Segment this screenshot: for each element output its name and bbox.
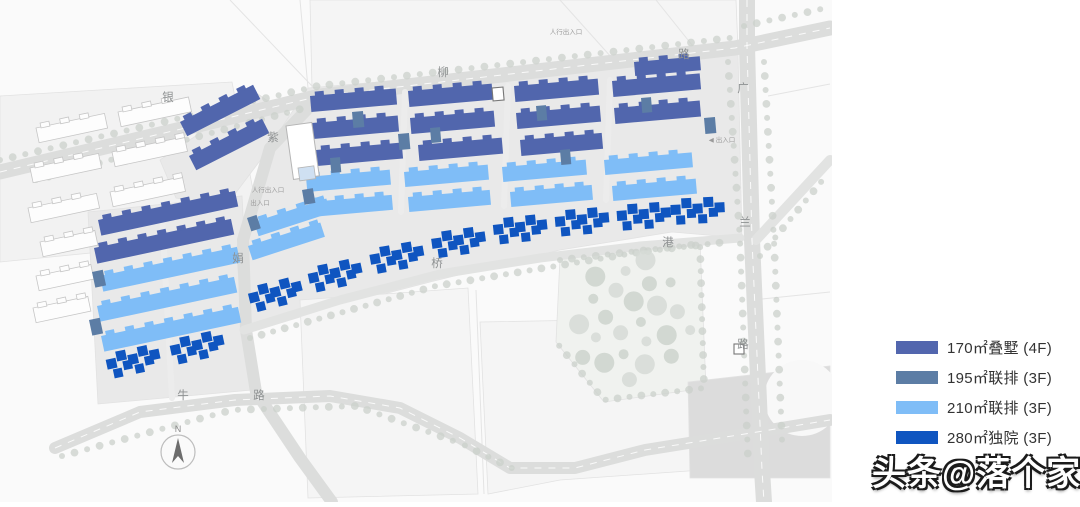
rect [354, 193, 363, 199]
tree-icon [664, 349, 679, 364]
tree-icon [773, 297, 779, 303]
rect [463, 227, 474, 238]
tree-icon [494, 62, 500, 68]
rect [525, 214, 536, 225]
rect [352, 111, 364, 128]
tree-icon [700, 375, 708, 383]
tree-icon [638, 392, 646, 400]
rect [587, 207, 598, 218]
rect [554, 183, 563, 189]
rect [507, 162, 516, 168]
tree-icon [622, 372, 637, 387]
rect [639, 57, 648, 63]
rect [380, 140, 389, 146]
rect [335, 195, 344, 201]
tree-icon [738, 269, 744, 275]
tree-icon [713, 36, 721, 44]
internal-lane [504, 86, 508, 206]
tree-icon [496, 459, 504, 467]
tree-icon [676, 243, 682, 249]
tree-icon [743, 422, 751, 430]
road-label: 牛 [177, 388, 189, 402]
legend-label: 210㎡联排 (3F) [947, 397, 1052, 418]
tree-icon [804, 8, 812, 16]
rect [545, 133, 554, 139]
tree-icon [281, 324, 289, 332]
tree-icon [739, 310, 747, 318]
rect [317, 118, 326, 124]
tree-icon [685, 386, 693, 394]
tree-icon [450, 438, 456, 444]
tree-icon [614, 395, 622, 403]
rect [546, 158, 555, 164]
tree-icon [467, 276, 475, 284]
rect [633, 214, 643, 224]
tree-icon [261, 406, 267, 412]
tree-icon [587, 380, 593, 386]
rect [330, 157, 341, 173]
rect [360, 141, 369, 147]
tree-icon [196, 415, 204, 423]
rect [459, 245, 469, 255]
tree-icon [412, 424, 420, 432]
tree-icon [666, 277, 676, 287]
tree-icon [685, 325, 695, 335]
tree-icon [731, 156, 739, 164]
tree-icon [621, 266, 631, 276]
tree-icon [697, 279, 705, 287]
tree-icon [578, 370, 586, 378]
legend-row-p: 170㎡叠墅 (4F) [896, 332, 1052, 362]
tree-icon [135, 124, 143, 132]
rect [560, 149, 571, 165]
tree-icon [733, 171, 739, 177]
rect [670, 204, 681, 215]
tree-icon [340, 309, 346, 315]
tree-icon [598, 50, 604, 56]
tree-icon [409, 290, 415, 296]
rect [509, 227, 519, 237]
tree-icon [624, 291, 644, 311]
tree-icon [594, 353, 614, 373]
tree-icon [469, 65, 475, 71]
tree-icon [778, 409, 784, 415]
rect [113, 368, 124, 379]
tree-icon [698, 385, 704, 391]
tree-icon [729, 115, 735, 121]
tree-icon [373, 299, 381, 307]
tree-icon [403, 72, 411, 80]
tree-icon [514, 269, 522, 277]
rect [408, 252, 418, 262]
tree-icon [642, 276, 657, 291]
rect [321, 145, 330, 151]
rect [433, 84, 442, 90]
legend-row-l: 210㎡联排 (3F) [896, 392, 1052, 422]
tree-icon [778, 14, 786, 22]
tree-icon [733, 184, 741, 192]
road-label: 银 [162, 90, 174, 104]
road-label: 柳 [437, 65, 449, 79]
tree-icon [520, 59, 526, 65]
rect [584, 130, 593, 136]
tree-icon [650, 391, 656, 397]
rect [346, 269, 357, 280]
tree-icon [159, 426, 165, 432]
tree-icon [572, 361, 578, 367]
tree-icon [769, 212, 777, 220]
rect [337, 116, 346, 122]
tree-icon [401, 420, 407, 426]
road-label: 路 [737, 337, 749, 351]
tree-icon [351, 78, 359, 86]
rect [415, 113, 424, 119]
tree-icon [767, 171, 773, 177]
rect [452, 82, 461, 88]
tree-icon [699, 351, 707, 359]
tree-icon [287, 88, 295, 96]
road-label: 桥 [431, 256, 443, 270]
tree-icon [687, 39, 695, 47]
legend-row-s: 195㎡联排 (3F) [896, 362, 1052, 392]
rect [413, 192, 422, 198]
legend-swatch-p [896, 341, 938, 354]
tree-icon [698, 268, 704, 274]
tree-icon [490, 272, 498, 280]
tree-icon [619, 349, 629, 359]
rect [413, 86, 422, 92]
rect [134, 363, 145, 374]
tree-icon [594, 388, 602, 396]
tree-icon [636, 317, 646, 327]
road-label: 港 [662, 235, 674, 249]
rect [448, 240, 458, 250]
rect [474, 108, 483, 114]
rect [369, 253, 381, 265]
rect [401, 242, 413, 254]
rect [374, 192, 383, 198]
tree-icon [220, 126, 228, 134]
rect [678, 98, 687, 104]
tree-icon [741, 23, 747, 29]
community-center-annex [298, 166, 316, 181]
tree-icon [792, 12, 798, 18]
tree-icon [22, 151, 28, 157]
tree-icon [84, 446, 90, 452]
rect [583, 225, 593, 235]
tree-icon [700, 364, 706, 370]
tree-icon [481, 63, 489, 71]
tree-icon [779, 437, 785, 443]
road-label: 路 [678, 47, 690, 61]
legend-label: 170㎡叠墅 (4F) [947, 337, 1052, 358]
building-row-s [641, 97, 652, 113]
tree-icon [627, 394, 633, 400]
tree-icon [304, 318, 312, 326]
tree-icon [697, 255, 705, 263]
building-row-s [560, 149, 571, 165]
tree-icon [764, 115, 770, 121]
tree-icon [738, 282, 746, 290]
tree-icon [365, 77, 371, 83]
rect [433, 190, 442, 196]
rect [454, 109, 463, 115]
tree-icon [705, 241, 711, 247]
tree-icon [635, 354, 655, 374]
tree-icon [109, 439, 115, 445]
tree-icon [727, 100, 735, 108]
rect [535, 185, 544, 191]
tree-icon [725, 72, 733, 80]
tree-icon [670, 304, 685, 319]
tree-icon [641, 336, 651, 346]
tree-icon [327, 312, 335, 320]
rect [335, 89, 344, 95]
tree-icon [287, 405, 293, 411]
rect [315, 91, 324, 97]
rect [115, 350, 127, 362]
rect [521, 108, 530, 114]
tree-icon [674, 388, 680, 394]
rect [409, 167, 418, 173]
tree-icon [767, 184, 775, 192]
rect [144, 355, 155, 366]
rect [593, 218, 603, 228]
rect [336, 277, 347, 288]
tree-icon [388, 415, 396, 423]
rect [315, 282, 326, 293]
tree-icon [777, 381, 783, 387]
rect [531, 225, 541, 235]
tree-icon [149, 122, 155, 128]
tree-icon [616, 249, 624, 257]
tree-icon [581, 254, 587, 260]
tree-icon [744, 437, 750, 443]
tree-icon [284, 110, 290, 116]
rect [558, 77, 567, 83]
tree-icon [569, 314, 589, 334]
legend-label: 280㎡独院 (3F) [947, 427, 1052, 448]
tree-icon [9, 153, 17, 161]
tree-icon [273, 405, 281, 413]
tree-icon [737, 254, 745, 262]
rect [106, 358, 118, 370]
rect [580, 103, 589, 109]
tree-icon [258, 331, 266, 339]
tree-icon [146, 428, 154, 436]
tree-icon [661, 389, 669, 397]
tree-icon [779, 224, 787, 232]
rect [560, 104, 569, 110]
rect [324, 274, 335, 285]
tree-icon [773, 310, 781, 318]
tree-icon [161, 118, 169, 126]
tree-icon [73, 139, 79, 145]
tree-icon [817, 6, 823, 12]
rect [431, 238, 442, 249]
tree-icon [742, 381, 748, 387]
tree-icon [727, 87, 733, 93]
tree-icon [764, 243, 772, 251]
rect [574, 182, 583, 188]
tree-icon [609, 283, 624, 298]
tree-icon [701, 38, 707, 44]
tree-icon [210, 412, 216, 418]
rect [655, 213, 665, 223]
map-layers: 银柳路广兰路紫娟桥港牛路人行出入口出入口◀ 出入口人行出入口N [0, 0, 840, 502]
tree-icon [776, 394, 784, 402]
rect [571, 220, 581, 230]
rect [676, 176, 685, 182]
tree-icon [185, 419, 191, 425]
rect [379, 245, 391, 257]
tree-icon [764, 128, 772, 136]
rect [376, 113, 385, 119]
tree-icon [727, 35, 733, 41]
rect [429, 165, 438, 171]
road-label: 广 [737, 81, 749, 95]
rect [443, 138, 452, 144]
entrance-annotation: 人行出入口 [252, 185, 285, 194]
rect [177, 354, 188, 365]
watermark: 头条@落个家 [872, 446, 1080, 495]
tree-icon [326, 81, 334, 89]
entrance-annotation: 出入口 [250, 198, 270, 207]
tree-icon [753, 19, 761, 27]
rect [703, 197, 714, 208]
tree-icon [235, 407, 241, 413]
tree-icon [550, 264, 556, 270]
tree-icon [575, 350, 590, 365]
rect [709, 208, 718, 217]
tree-icon [635, 45, 643, 53]
tree-icon [386, 296, 392, 302]
tree-icon [613, 325, 628, 340]
tree-icon [605, 252, 611, 258]
tree-icon [698, 292, 704, 298]
tree-icon [417, 71, 423, 77]
tree-icon [270, 329, 276, 335]
rect [561, 227, 571, 237]
rect [617, 76, 626, 82]
tree-icon [769, 199, 775, 205]
rect [472, 81, 481, 87]
internal-lane [606, 80, 610, 200]
rect [441, 230, 452, 241]
tree-icon [479, 275, 485, 281]
rect [482, 135, 491, 141]
rect [698, 214, 707, 223]
tree-icon [585, 267, 605, 287]
tree-icon [794, 206, 802, 214]
entrance-annotation: ◀ 出入口 [709, 135, 736, 144]
tree-icon [195, 132, 203, 140]
tree-icon [763, 87, 769, 93]
rect [681, 198, 692, 209]
rect [468, 162, 477, 168]
rect [644, 219, 654, 229]
rect [374, 86, 383, 92]
entrance-annotation: 人行出入口 [550, 27, 583, 36]
rect [462, 136, 471, 142]
building-row-s [536, 105, 547, 121]
tree-icon [744, 450, 752, 458]
rect [527, 160, 536, 166]
rect [452, 188, 461, 194]
rect [637, 179, 646, 185]
tree-icon [661, 42, 669, 50]
tree-icon [509, 465, 515, 471]
tree-icon [716, 239, 724, 247]
tree-icon [697, 244, 703, 250]
tree-icon [610, 48, 618, 56]
tree-icon [437, 432, 445, 440]
rect [370, 167, 379, 173]
rect [578, 76, 587, 82]
rect [398, 133, 410, 150]
rect [627, 204, 638, 215]
rect [122, 360, 133, 371]
rect [317, 264, 329, 276]
rect [430, 127, 441, 143]
building-row-s [398, 133, 410, 150]
tree-icon [775, 325, 781, 331]
rect [515, 187, 524, 193]
entrance-gate-icon [492, 87, 504, 101]
rect [386, 255, 396, 265]
rect [376, 263, 386, 273]
rect [617, 181, 626, 187]
tree-icon [572, 53, 578, 59]
tree-icon [737, 241, 743, 247]
tree-icon [209, 130, 215, 136]
tree-icon [818, 179, 824, 185]
legend-swatch-s [896, 371, 938, 384]
rect [503, 217, 514, 228]
tree-icon [803, 198, 809, 204]
tree-icon [772, 269, 778, 275]
tree-icon [546, 56, 552, 62]
rect [339, 259, 351, 271]
road-label: 紫 [267, 130, 279, 144]
rect [641, 97, 652, 113]
rect [622, 221, 632, 231]
tree-icon [124, 128, 130, 134]
rect [493, 224, 504, 235]
rect [308, 272, 320, 284]
tree-icon [687, 241, 695, 249]
tree-icon [350, 305, 358, 313]
rect [658, 99, 667, 105]
tree-icon [429, 69, 437, 77]
rect [354, 87, 363, 93]
rect [648, 151, 657, 157]
tree-icon [473, 447, 481, 455]
rect [659, 55, 668, 61]
tree-icon [761, 72, 769, 80]
tree-icon [276, 92, 282, 98]
rect [629, 153, 638, 159]
tree-icon [174, 116, 180, 122]
rect [656, 177, 665, 183]
tree-icon [262, 94, 270, 102]
road-label: 路 [253, 388, 265, 402]
tree-icon [741, 366, 749, 374]
rect [668, 150, 677, 156]
rect [499, 234, 509, 244]
tree-icon [271, 112, 279, 120]
rect [687, 209, 696, 218]
